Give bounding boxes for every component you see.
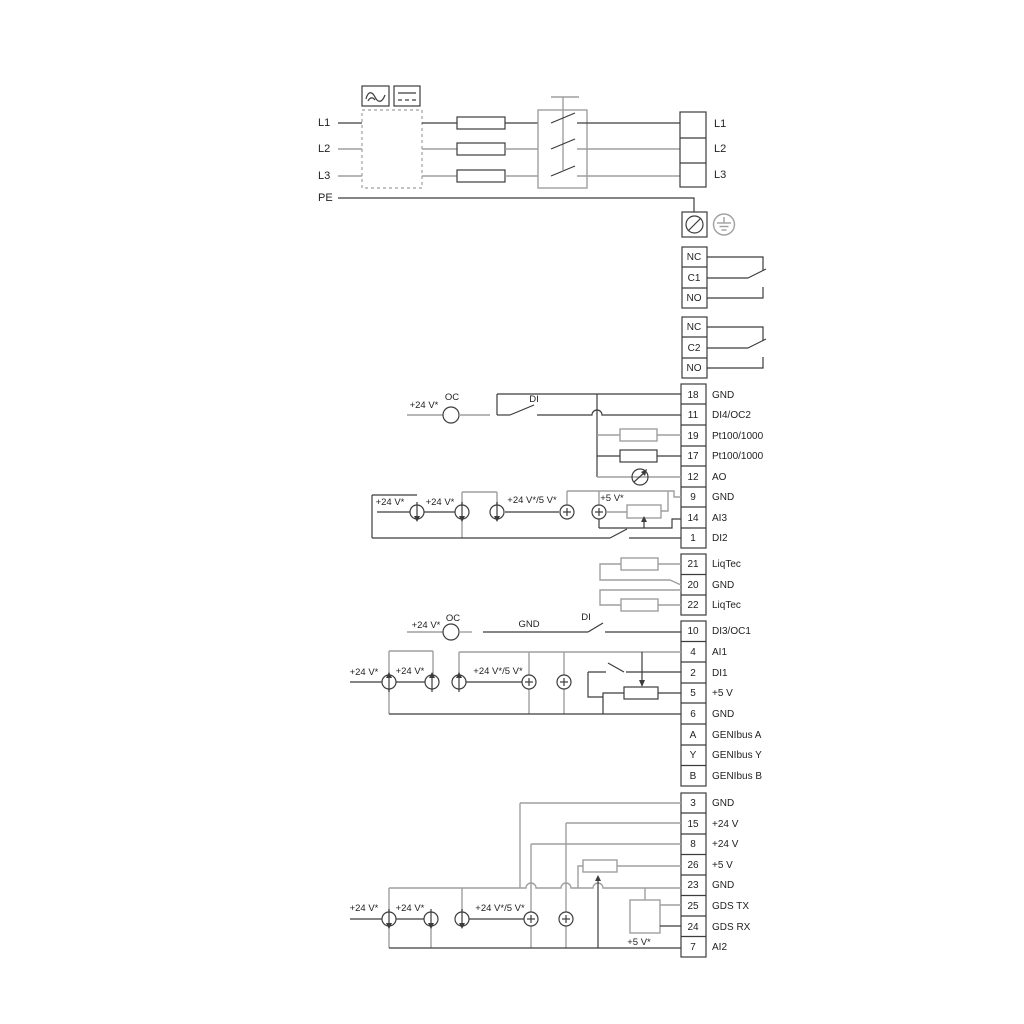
terminal-number: 26 xyxy=(687,860,699,871)
current-source-icon xyxy=(382,672,396,692)
earth-icon xyxy=(714,214,735,235)
terminal-number: 7 xyxy=(690,942,696,953)
digital-input-2-circuit: +24 V* OC DI xyxy=(407,392,681,485)
mains-terminal-block xyxy=(680,112,706,187)
terminal-number: A xyxy=(690,730,697,741)
analog-input-3-circuit: +24 V* +24 V* +24 V*/5 V* +5 V* xyxy=(372,491,681,538)
dc-symbol-icon xyxy=(394,86,420,106)
terminal-number: 23 xyxy=(687,880,699,891)
relay-contact-icon xyxy=(707,327,766,368)
terminal-label: AI1 xyxy=(712,647,727,658)
terminal-number: 20 xyxy=(687,580,699,591)
current-source-icon xyxy=(382,909,396,929)
voltage-source-icon xyxy=(560,505,574,519)
fuse-icon xyxy=(457,170,505,182)
potentiometer-icon xyxy=(624,687,658,699)
terminal-number: 14 xyxy=(687,513,699,524)
terminal-number: 15 xyxy=(687,819,699,830)
terminal-number: 9 xyxy=(690,492,696,503)
switch-icon xyxy=(608,663,624,672)
di-label: DI xyxy=(529,394,539,405)
supply-label: +24 V*/5 V* xyxy=(473,666,523,677)
voltage-source-icon xyxy=(559,912,573,926)
relay-terminal: NO xyxy=(687,293,702,304)
resistor-icon xyxy=(621,599,658,611)
voltage-source-icon xyxy=(524,912,538,926)
pe-wire xyxy=(338,198,694,212)
supply-label: +5 V* xyxy=(627,937,651,948)
drive-unit-box xyxy=(362,110,422,188)
terminal-block-top: 18 GND 11 DI4/OC2 19 Pt100/1000 17 Pt100… xyxy=(681,384,764,548)
switch-icon xyxy=(588,623,603,632)
terminal-number: B xyxy=(690,771,697,782)
open-collector-label: OC xyxy=(445,392,459,403)
gnd-rail xyxy=(389,883,681,888)
terminal-number: 3 xyxy=(690,798,696,809)
terminal-label: DI2 xyxy=(712,533,728,544)
terminal-label: AO xyxy=(712,472,727,483)
terminal-number: Y xyxy=(690,750,697,761)
switch-icon xyxy=(510,405,534,415)
mains-input-label: PE xyxy=(318,192,333,204)
current-source-icon xyxy=(410,502,424,522)
relay-2-block: NC C2 NO xyxy=(682,317,766,378)
voltage-source-icon xyxy=(522,675,536,689)
relay-terminal: C1 xyxy=(688,273,701,284)
supply-label: +24 V* xyxy=(350,667,379,678)
mains-output-label: L1 xyxy=(714,118,726,130)
terminal-block-mid: 10 DI3/OC1 4 AI1 2 DI1 5 +5 V 6 GND A GE… xyxy=(681,621,762,786)
supply-label: +24 V* xyxy=(396,903,425,914)
gnd-label: GND xyxy=(518,619,539,630)
relay-terminal: NC xyxy=(687,252,701,263)
potentiometer-icon xyxy=(583,860,617,872)
terminal-label: GND xyxy=(712,798,734,809)
gds-sensor-box xyxy=(630,888,681,933)
digital-input-1-circuit: +24 V* OC GND DI +24 V* +24 V* +24 V*/5 … xyxy=(350,612,681,714)
switch-icon xyxy=(610,529,627,538)
current-source-icon xyxy=(490,502,504,522)
mains-input-label: L3 xyxy=(318,170,330,182)
terminal-number: 25 xyxy=(687,901,699,912)
terminal-label: GND xyxy=(712,390,734,401)
terminal-number: 2 xyxy=(690,668,696,679)
mains-output-label: L2 xyxy=(714,143,726,155)
current-source-icon xyxy=(455,502,469,522)
supply-label: +24 V* xyxy=(396,666,425,677)
terminal-label: GND xyxy=(712,880,734,891)
relay-terminal: NC xyxy=(687,322,701,333)
terminal-label: AI2 xyxy=(712,942,727,953)
terminal-number: 24 xyxy=(687,922,699,933)
current-source-icon xyxy=(452,672,466,692)
voltage-source-icon xyxy=(557,675,571,689)
resistor-icon xyxy=(620,450,657,462)
fuse-icon xyxy=(457,143,505,155)
di-label: DI xyxy=(581,612,591,623)
terminal-block-liqtec: 21 LiqTec 20 GND 22 LiqTec xyxy=(681,554,741,615)
liqtec-sensor-circuit xyxy=(600,558,681,611)
mains-input-label: L1 xyxy=(318,117,330,129)
supply-label: +5 V* xyxy=(600,493,624,504)
terminal-label: DI1 xyxy=(712,668,728,679)
open-collector-icon xyxy=(443,407,459,423)
terminal-number: 17 xyxy=(687,451,699,462)
terminal-label: GND xyxy=(712,492,734,503)
fuse-icon xyxy=(457,117,505,129)
wiring-diagram-page: L1 L2 L3 PE xyxy=(0,0,1024,1024)
terminal-label: +5 V xyxy=(712,860,733,871)
main-switch-icon xyxy=(538,97,587,188)
wiper-arrow-icon xyxy=(595,875,601,881)
terminal-label: DI4/OC2 xyxy=(712,410,751,421)
terminal-label: +5 V xyxy=(712,688,733,699)
mains-section: L1 L2 L3 PE xyxy=(318,86,735,237)
wiper-arrow-icon xyxy=(639,680,645,687)
pe-terminal-icon xyxy=(682,212,707,237)
supply-label: +24 V* xyxy=(412,620,441,631)
terminal-number: 12 xyxy=(687,472,699,483)
terminal-label: GENIbus A xyxy=(712,730,762,741)
terminal-label: GENIbus B xyxy=(712,771,762,782)
supply-label: +24 V*/5 V* xyxy=(475,903,525,914)
terminal-label: LiqTec xyxy=(712,559,741,570)
relay-terminal: NO xyxy=(687,363,702,374)
terminal-number: 8 xyxy=(690,839,696,850)
current-source-icon xyxy=(425,672,439,692)
terminal-label: GND xyxy=(712,709,734,720)
supply-label: +24 V* xyxy=(426,497,455,508)
terminal-label: GND xyxy=(712,580,734,591)
terminal-label: GENIbus Y xyxy=(712,750,762,761)
open-collector-icon xyxy=(443,624,459,640)
relay-contact-icon xyxy=(707,257,766,298)
wiring-diagram: L1 L2 L3 PE xyxy=(0,0,1024,1024)
terminal-number: 18 xyxy=(687,390,699,401)
supply-label: +24 V* xyxy=(376,497,405,508)
terminal-number: 19 xyxy=(687,431,699,442)
terminal-label: GDS RX xyxy=(712,922,751,933)
terminal-number: 5 xyxy=(690,688,696,699)
terminal-number: 1 xyxy=(690,533,696,544)
terminal-label: LiqTec xyxy=(712,600,741,611)
supply-label: +24 V* xyxy=(350,903,379,914)
mains-output-label: L3 xyxy=(714,169,726,181)
terminal-label: Pt100/1000 xyxy=(712,431,764,442)
terminal-block-bottom: 3 GND 15 +24 V 8 +24 V 26 +5 V 23 GND 25… xyxy=(681,793,751,957)
terminal-label: Pt100/1000 xyxy=(712,451,764,462)
terminal-label: AI3 xyxy=(712,513,727,524)
supply-label: +24 V*/5 V* xyxy=(507,495,557,506)
current-source-icon xyxy=(455,909,469,929)
terminal-number: 4 xyxy=(690,647,696,658)
terminal-number: 22 xyxy=(687,600,699,611)
relay-1-block: NC C1 NO xyxy=(682,247,766,308)
terminal-number: 11 xyxy=(688,410,699,421)
relay-terminal: C2 xyxy=(688,343,701,354)
terminal-label: DI3/OC1 xyxy=(712,626,751,637)
terminal-number: 10 xyxy=(687,626,699,637)
terminal-label: +24 V xyxy=(712,839,739,850)
supply-label: +24 V* xyxy=(410,400,439,411)
analog-input-2-circuit: +5 V* +24 V* +24 V* +24 V*/5 V* xyxy=(350,803,681,948)
terminal-number: 21 xyxy=(687,559,699,570)
voltage-source-icon xyxy=(592,505,606,519)
terminal-label: GDS TX xyxy=(712,901,749,912)
mains-input-label: L2 xyxy=(318,143,330,155)
resistor-icon xyxy=(621,558,658,570)
terminal-number: 6 xyxy=(690,709,696,720)
current-source-icon xyxy=(424,909,438,929)
open-collector-label: OC xyxy=(446,613,460,624)
resistor-icon xyxy=(620,429,657,441)
terminal-label: +24 V xyxy=(712,819,739,830)
ac-symbol-icon xyxy=(362,86,389,106)
